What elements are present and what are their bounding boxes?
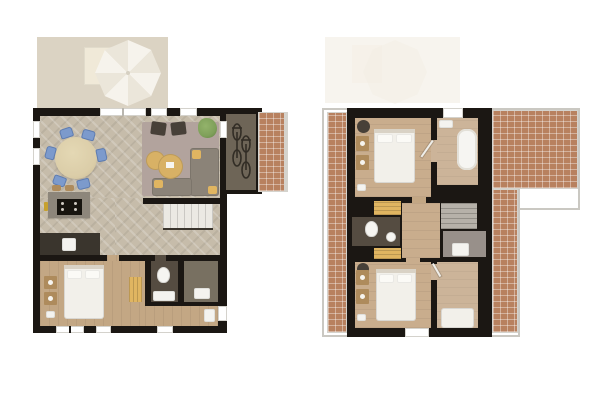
slippers xyxy=(357,184,366,191)
landing-floor xyxy=(402,203,440,258)
upper-floor-plan xyxy=(0,0,600,400)
slippers xyxy=(357,314,366,321)
pillow xyxy=(396,134,412,143)
double-bed xyxy=(376,269,416,321)
pillow xyxy=(377,134,393,143)
lamp xyxy=(360,160,365,165)
nightstand xyxy=(356,136,369,151)
floor-plan-canvas xyxy=(0,0,600,400)
washbasin xyxy=(386,232,396,242)
wardrobe xyxy=(374,248,401,259)
dresser xyxy=(452,243,469,256)
parasol-ghost xyxy=(363,40,427,104)
double-bed xyxy=(374,129,415,183)
bathtub xyxy=(457,129,477,170)
pillow xyxy=(379,274,394,283)
roof-left xyxy=(327,112,347,333)
pillow xyxy=(397,274,412,283)
single-bed xyxy=(441,308,474,328)
lamp xyxy=(360,294,365,299)
wardrobe xyxy=(374,201,401,215)
headboard xyxy=(374,129,415,133)
nightstand xyxy=(356,289,369,304)
round-chair xyxy=(357,120,370,133)
roof-right-strip xyxy=(492,189,518,333)
bath-counter xyxy=(439,120,453,128)
staircase-upper xyxy=(441,203,477,229)
window xyxy=(405,328,429,337)
headboard xyxy=(376,269,416,273)
roof-right-block xyxy=(492,110,578,189)
toilet xyxy=(365,221,378,237)
nightstand xyxy=(356,155,369,170)
window xyxy=(443,108,463,118)
lamp xyxy=(360,275,365,280)
nightstand xyxy=(356,270,369,285)
lamp xyxy=(360,141,365,146)
